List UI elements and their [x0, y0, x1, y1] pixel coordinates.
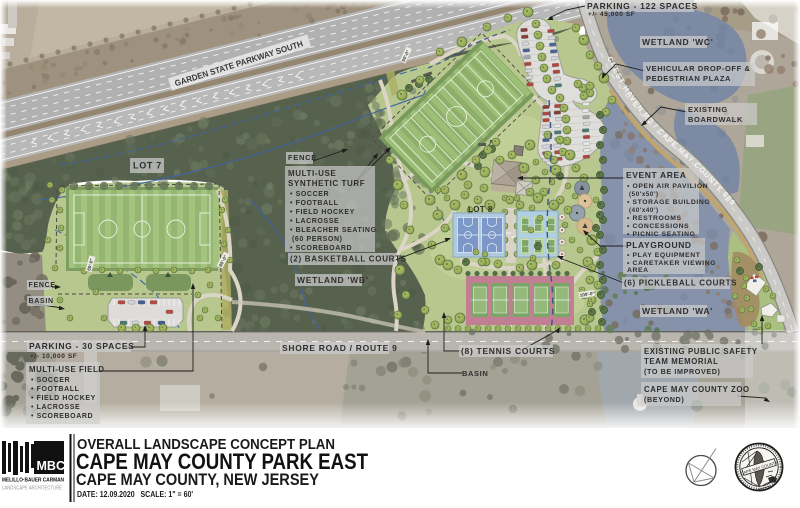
svg-text:BOARDWALK: BOARDWALK [688, 115, 743, 124]
svg-text:• PLAY EQUIPMENT: • PLAY EQUIPMENT [627, 252, 701, 259]
svg-text:EVENT AREA: EVENT AREA [626, 170, 686, 180]
svg-text:TEAM MEMORIAL: TEAM MEMORIAL [644, 357, 719, 366]
svg-text:(TO BE IMPROVED): (TO BE IMPROVED) [644, 367, 721, 376]
svg-text:(40'x40'): (40'x40') [629, 207, 659, 214]
svg-text:PARKING - 30 SPACES: PARKING - 30 SPACES [29, 341, 135, 351]
svg-text:LOT 8: LOT 8 [468, 205, 493, 214]
svg-text:EXISTING: EXISTING [688, 105, 728, 114]
svg-text:• BLEACHER SEATING: • BLEACHER SEATING [290, 227, 377, 234]
svg-text:CAPE MAY COUNTY, NEW JERSEY: CAPE MAY COUNTY, NEW JERSEY [76, 470, 320, 489]
svg-text:• LACROSSE: • LACROSSE [31, 404, 80, 411]
svg-text:• PICNIC SEATING: • PICNIC SEATING [627, 231, 696, 238]
svg-text:WETLAND 'WB': WETLAND 'WB' [297, 275, 368, 285]
svg-text:DATE: 12.09.2020 SCALE: 1" =: DATE: 12.09.2020 SCALE: 1" = 60' [77, 490, 193, 499]
svg-text:• SCOREBOARD: • SCOREBOARD [31, 413, 93, 420]
svg-text:+/- 10,000 SF: +/- 10,000 SF [30, 353, 77, 360]
svg-text:MULTI-USE FIELD: MULTI-USE FIELD [29, 365, 105, 374]
svg-text:LANDSCAPE ARCHITECTURE: LANDSCAPE ARCHITECTURE [2, 486, 62, 492]
svg-text:FENCE: FENCE [288, 153, 317, 162]
svg-text:VEHICULAR DROP-OFF &: VEHICULAR DROP-OFF & [646, 64, 751, 73]
svg-text:• CONCESSIONS: • CONCESSIONS [627, 223, 689, 230]
svg-text:• LACROSSE: • LACROSSE [290, 218, 339, 225]
svg-text:(2) BASKETBALL COURTS: (2) BASKETBALL COURTS [290, 255, 407, 264]
svg-text:LOT 7: LOT 7 [133, 161, 162, 171]
svg-text:(BEYOND): (BEYOND) [644, 395, 684, 404]
svg-text:• SCOREBOARD: • SCOREBOARD [290, 245, 352, 252]
svg-text:PARKING - 122 SPACES: PARKING - 122 SPACES [587, 1, 698, 11]
svg-text:BASIN: BASIN [29, 298, 54, 305]
svg-text:AREA: AREA [627, 267, 649, 274]
svg-text:WETLAND 'WA': WETLAND 'WA' [642, 306, 713, 316]
svg-text:+/- 45,000 SF: +/- 45,000 SF [588, 11, 635, 18]
svg-text:• CARETAKER VIEWING: • CARETAKER VIEWING [627, 260, 716, 267]
svg-text:PEDESTRIAN PLAZA: PEDESTRIAN PLAZA [646, 74, 731, 83]
svg-text:MBC: MBC [37, 459, 65, 473]
svg-text:(8) TENNIS COURTS: (8) TENNIS COURTS [461, 346, 555, 356]
svg-text:MULTI-USE: MULTI-USE [288, 169, 336, 178]
svg-text:(60 PERSON): (60 PERSON) [292, 236, 343, 243]
svg-text:• FOOTBALL: • FOOTBALL [31, 386, 80, 393]
svg-text:PLAYGROUND: PLAYGROUND [626, 240, 692, 250]
svg-text:SYNTHETIC TURF: SYNTHETIC TURF [288, 179, 365, 188]
svg-text:CAPE MAY COUNTY ZOO: CAPE MAY COUNTY ZOO [644, 385, 750, 394]
svg-text:(6) PICKLEBALL COURTS: (6) PICKLEBALL COURTS [624, 279, 737, 288]
svg-text:• FIELD HOCKEY: • FIELD HOCKEY [290, 209, 355, 216]
svg-text:EXISTING PUBLIC SAFETY: EXISTING PUBLIC SAFETY [644, 347, 758, 356]
svg-text:• OPEN AIR PAVILION: • OPEN AIR PAVILION [627, 183, 708, 190]
svg-text:SHORE ROAD / ROUTE 9: SHORE ROAD / ROUTE 9 [282, 343, 398, 353]
svg-text:WETLAND 'WC': WETLAND 'WC' [642, 37, 713, 47]
svg-text:FENCE: FENCE [29, 282, 56, 289]
svg-text:MELILLO·BAUER CARMAN: MELILLO·BAUER CARMAN [2, 478, 64, 484]
svg-text:(50'x50'): (50'x50') [629, 191, 659, 198]
svg-text:• STORAGE BUILDING: • STORAGE BUILDING [627, 199, 710, 206]
svg-text:• FOOTBALL: • FOOTBALL [290, 200, 339, 207]
svg-text:• SOCCER: • SOCCER [31, 377, 70, 384]
svg-text:• RESTROOMS: • RESTROOMS [627, 215, 682, 222]
svg-text:• SOCCER: • SOCCER [290, 191, 329, 198]
svg-text:• FIELD HOCKEY: • FIELD HOCKEY [31, 395, 96, 402]
svg-text:BASIN: BASIN [462, 369, 488, 378]
